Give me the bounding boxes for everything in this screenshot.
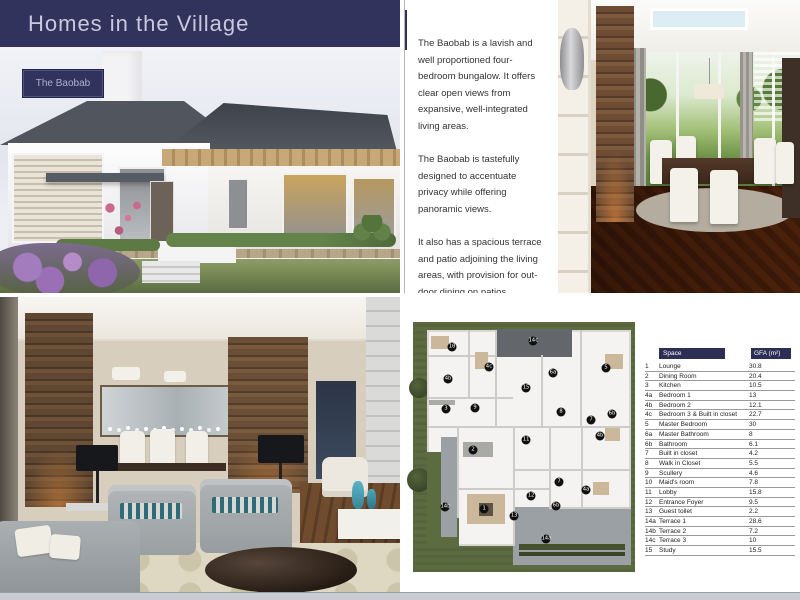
wall bbox=[541, 355, 543, 426]
floor-lamp bbox=[258, 435, 304, 463]
wall bbox=[549, 507, 631, 509]
exterior-render-photo: The Baobab bbox=[0, 47, 400, 293]
dining-room-photo bbox=[558, 0, 800, 293]
table-row: 5Master Bedroom30 bbox=[645, 420, 795, 430]
space-gfa: 8 bbox=[749, 430, 795, 439]
space-number: 10 bbox=[645, 478, 659, 487]
space-name: Bathroom bbox=[659, 440, 749, 449]
page-title: Homes in the Village bbox=[0, 0, 400, 48]
wall bbox=[468, 330, 470, 397]
table-row: 6bBathroom6.1 bbox=[645, 440, 795, 450]
space-gfa: 10 bbox=[749, 536, 795, 545]
space-number: 12 bbox=[645, 498, 659, 507]
dining-chair bbox=[776, 142, 794, 184]
table-row: 14aTerrace 128.6 bbox=[645, 517, 795, 527]
table-row: 7Built in closet4.2 bbox=[645, 449, 795, 459]
space-gfa: 12.1 bbox=[749, 401, 795, 410]
description-paragraph-1: The Baobab is a lavish and well proporti… bbox=[418, 36, 548, 135]
wall bbox=[581, 426, 583, 507]
room-marker-15: 15 bbox=[522, 384, 531, 393]
space-table: Space GFA (m²) 1Lounge30.82Dining Room20… bbox=[645, 348, 795, 556]
entry-steps bbox=[142, 261, 200, 283]
space-gfa: 4.2 bbox=[749, 449, 795, 458]
striped-cushion bbox=[120, 503, 182, 519]
floor-plan: 14c104c4b6a15539876b1124b74a126b14b11314… bbox=[413, 322, 635, 572]
room-marker-7: 7 bbox=[555, 478, 564, 487]
room-marker-11: 11 bbox=[522, 436, 531, 445]
description-paragraph-2: The Baobab is tastefully designed to acc… bbox=[418, 152, 548, 218]
wall bbox=[457, 488, 549, 490]
space-name: Study bbox=[659, 546, 749, 555]
sofa-pillow bbox=[49, 534, 81, 561]
space-name: Terrace 2 bbox=[659, 527, 749, 536]
timber-pergola bbox=[162, 149, 400, 166]
pendant-lamp bbox=[694, 84, 724, 99]
space-name: Lounge bbox=[659, 362, 749, 371]
space-number: 4c bbox=[645, 410, 659, 419]
wall bbox=[513, 426, 515, 546]
space-table-header: Space GFA (m²) bbox=[645, 348, 795, 359]
space-gfa: 13 bbox=[749, 391, 795, 400]
space-number: 6b bbox=[645, 440, 659, 449]
kitchen-counter bbox=[429, 400, 455, 405]
room-marker-4b: 4b bbox=[596, 432, 605, 441]
wall bbox=[427, 397, 513, 399]
teal-vase-small bbox=[367, 489, 376, 509]
room-marker-3: 3 bbox=[442, 405, 451, 414]
space-name: Kitchen bbox=[659, 381, 749, 390]
space-name: Bedroom 2 bbox=[659, 401, 749, 410]
table-row: 6aMaster Bathroom8 bbox=[645, 430, 795, 440]
space-gfa: 7.8 bbox=[749, 478, 795, 487]
space-number: 15 bbox=[645, 546, 659, 555]
floorplan-panel: 14c104c4b6a15539876b1124b74a126b14b11314… bbox=[405, 296, 800, 592]
table-row: 4bBedroom 212.1 bbox=[645, 401, 795, 411]
room-marker-6a: 6a bbox=[549, 369, 558, 378]
space-number: 4a bbox=[645, 391, 659, 400]
space-gfa: 28.6 bbox=[749, 517, 795, 526]
table-row: 15Study15.5 bbox=[645, 546, 795, 556]
white-flowers bbox=[108, 427, 112, 431]
table-row: 14cTerrace 310 bbox=[645, 536, 795, 546]
stone-feature-wall bbox=[366, 297, 400, 483]
space-gfa: 7.2 bbox=[749, 527, 795, 536]
description-paragraph-3: It also has a spacious terrace and patio… bbox=[418, 235, 548, 293]
space-number: 13 bbox=[645, 507, 659, 516]
room-marker-14b: 14b bbox=[441, 503, 450, 512]
armchair-right bbox=[200, 479, 292, 553]
space-gfa: 30.8 bbox=[749, 362, 795, 371]
uplight-glow bbox=[596, 150, 634, 222]
table-row: 10Maid's room7.8 bbox=[645, 478, 795, 488]
planter-hedge bbox=[519, 544, 625, 550]
space-name: Guest toilet bbox=[659, 507, 749, 516]
bed-maid bbox=[431, 336, 449, 349]
table-row: 4cBedroom 3 & Built in closet22.7 bbox=[645, 410, 795, 420]
space-number: 1 bbox=[645, 362, 659, 371]
wall bbox=[457, 426, 459, 518]
room-marker-4c: 4c bbox=[485, 363, 494, 372]
striped-cushion bbox=[212, 497, 278, 513]
space-gfa: 10.5 bbox=[749, 381, 795, 390]
wall bbox=[513, 469, 631, 471]
space-number: 2 bbox=[645, 372, 659, 381]
table-row: 13Guest toilet2.2 bbox=[645, 507, 795, 517]
dining-chair bbox=[120, 431, 145, 467]
space-number: 5 bbox=[645, 420, 659, 429]
pendant-cord bbox=[709, 58, 710, 84]
table-row: 8Walk in Closet5.5 bbox=[645, 459, 795, 469]
space-number: 4b bbox=[645, 401, 659, 410]
silver-vase bbox=[560, 28, 584, 90]
space-name: Maid's room bbox=[659, 478, 749, 487]
table-row: 2Dining Room20.4 bbox=[645, 372, 795, 382]
louvered-screen-window bbox=[12, 153, 104, 243]
gfa-column-header: GFA (m²) bbox=[751, 348, 791, 359]
terrace-1 bbox=[513, 507, 631, 565]
space-table-body: 1Lounge30.82Dining Room20.43Kitchen10.54… bbox=[645, 362, 795, 556]
space-name: Bedroom 3 & Built in closet bbox=[659, 410, 749, 419]
room-marker-7: 7 bbox=[587, 416, 596, 425]
space-name: Scullery bbox=[659, 469, 749, 478]
space-gfa: 30 bbox=[749, 420, 795, 429]
space-name: Lobby bbox=[659, 488, 749, 497]
table-row: 12Entrance Foyer9.5 bbox=[645, 498, 795, 508]
space-name: Bedroom 1 bbox=[659, 391, 749, 400]
media-console bbox=[338, 509, 400, 539]
window-bottom-bar bbox=[0, 592, 800, 600]
wall bbox=[580, 330, 582, 426]
space-name: Master Bathroom bbox=[659, 430, 749, 439]
dining-table bbox=[463, 442, 493, 457]
dark-cabinet bbox=[782, 58, 800, 218]
room-marker-6b: 6b bbox=[552, 502, 561, 511]
skylight bbox=[650, 8, 748, 30]
dark-wall-edge bbox=[0, 297, 18, 535]
space-gfa: 6.1 bbox=[749, 440, 795, 449]
room-marker-4b: 4b bbox=[444, 375, 453, 384]
coffee-table bbox=[205, 547, 357, 592]
table-row: 4aBedroom 113 bbox=[645, 391, 795, 401]
room-marker-14c: 14c bbox=[529, 337, 538, 346]
space-gfa: 20.4 bbox=[749, 372, 795, 381]
dining-table-edge bbox=[104, 463, 226, 471]
entry-canopy bbox=[46, 173, 164, 182]
room-marker-1: 1 bbox=[480, 505, 489, 514]
room-marker-6b: 6b bbox=[608, 410, 617, 419]
space-name: Entrance Foyer bbox=[659, 498, 749, 507]
room-marker-8: 8 bbox=[557, 408, 566, 417]
wall bbox=[549, 426, 551, 507]
space-gfa: 5.5 bbox=[749, 459, 795, 468]
number-column-header bbox=[645, 348, 659, 359]
table-row: 11Lobby15.8 bbox=[645, 488, 795, 498]
space-number: 6a bbox=[645, 430, 659, 439]
page-spine-accent bbox=[405, 10, 407, 50]
flowering-vine bbox=[92, 193, 152, 243]
bed-1 bbox=[593, 482, 609, 495]
space-column-header: Space bbox=[659, 348, 725, 359]
description-panel: The Baobab is a lavish and well proporti… bbox=[404, 0, 557, 293]
room-marker-2: 2 bbox=[469, 446, 478, 455]
sofa-pillow bbox=[14, 525, 54, 558]
space-gfa: 2.2 bbox=[749, 507, 795, 516]
space-name: Terrace 3 bbox=[659, 536, 749, 545]
table-row: 14bTerrace 27.2 bbox=[645, 527, 795, 537]
space-number: 11 bbox=[645, 488, 659, 497]
space-number: 14a bbox=[645, 517, 659, 526]
exterior-panel: Homes in the Village bbox=[0, 0, 400, 293]
space-number: 3 bbox=[645, 381, 659, 390]
table-row: 3Kitchen10.5 bbox=[645, 381, 795, 391]
dining-chair bbox=[754, 138, 776, 184]
room-marker-9: 9 bbox=[471, 404, 480, 413]
space-name: Terrace 1 bbox=[659, 517, 749, 526]
space-number: 7 bbox=[645, 449, 659, 458]
space-number: 14c bbox=[645, 536, 659, 545]
space-name: Walk in Closet bbox=[659, 459, 749, 468]
space-name: Built in closet bbox=[659, 449, 749, 458]
space-name: Dining Room bbox=[659, 372, 749, 381]
description-copy: The Baobab is a lavish and well proporti… bbox=[418, 36, 548, 293]
lamp-pole bbox=[96, 471, 99, 505]
room-marker-13: 13 bbox=[510, 512, 519, 521]
brochure-page: Homes in the Village bbox=[0, 0, 800, 600]
baobab-label-badge: The Baobab bbox=[23, 70, 103, 97]
space-gfa: 4.6 bbox=[749, 469, 795, 478]
space-number: 9 bbox=[645, 469, 659, 478]
teal-vase bbox=[352, 481, 364, 509]
terrace-2 bbox=[441, 437, 457, 537]
space-gfa: 15.8 bbox=[749, 488, 795, 497]
bed-2 bbox=[605, 428, 620, 441]
baobab-label: The Baobab bbox=[36, 78, 91, 89]
room-marker-4a: 4a bbox=[582, 486, 591, 495]
table-lamp bbox=[76, 445, 118, 471]
wall bbox=[495, 330, 497, 426]
dining-chair-front bbox=[710, 170, 738, 224]
space-name: Master Bedroom bbox=[659, 420, 749, 429]
space-number: 8 bbox=[645, 459, 659, 468]
space-gfa: 15.5 bbox=[749, 546, 795, 555]
window-small bbox=[228, 179, 248, 229]
space-gfa: 9.5 bbox=[749, 498, 795, 507]
planter-hedge bbox=[519, 552, 625, 556]
room-marker-14a: 14a bbox=[542, 535, 551, 544]
space-gfa: 22.7 bbox=[749, 410, 795, 419]
pendant-lamp bbox=[164, 371, 186, 382]
garden-plant bbox=[352, 215, 392, 249]
living-room-photo bbox=[0, 297, 400, 592]
dining-chair bbox=[150, 429, 175, 467]
table-row: 1Lounge30.8 bbox=[645, 362, 795, 372]
room-marker-5: 5 bbox=[602, 364, 611, 373]
room-marker-10: 10 bbox=[448, 343, 457, 352]
header-gap bbox=[725, 348, 751, 359]
dining-chair bbox=[186, 431, 208, 465]
table-row: 9Scullery4.6 bbox=[645, 469, 795, 479]
space-number: 14b bbox=[645, 527, 659, 536]
room-marker-12: 12 bbox=[527, 492, 536, 501]
pendant-lamp bbox=[112, 367, 140, 380]
page-header: Homes in the Village bbox=[0, 0, 400, 47]
dining-chair-front bbox=[670, 168, 698, 222]
tree bbox=[409, 378, 429, 398]
